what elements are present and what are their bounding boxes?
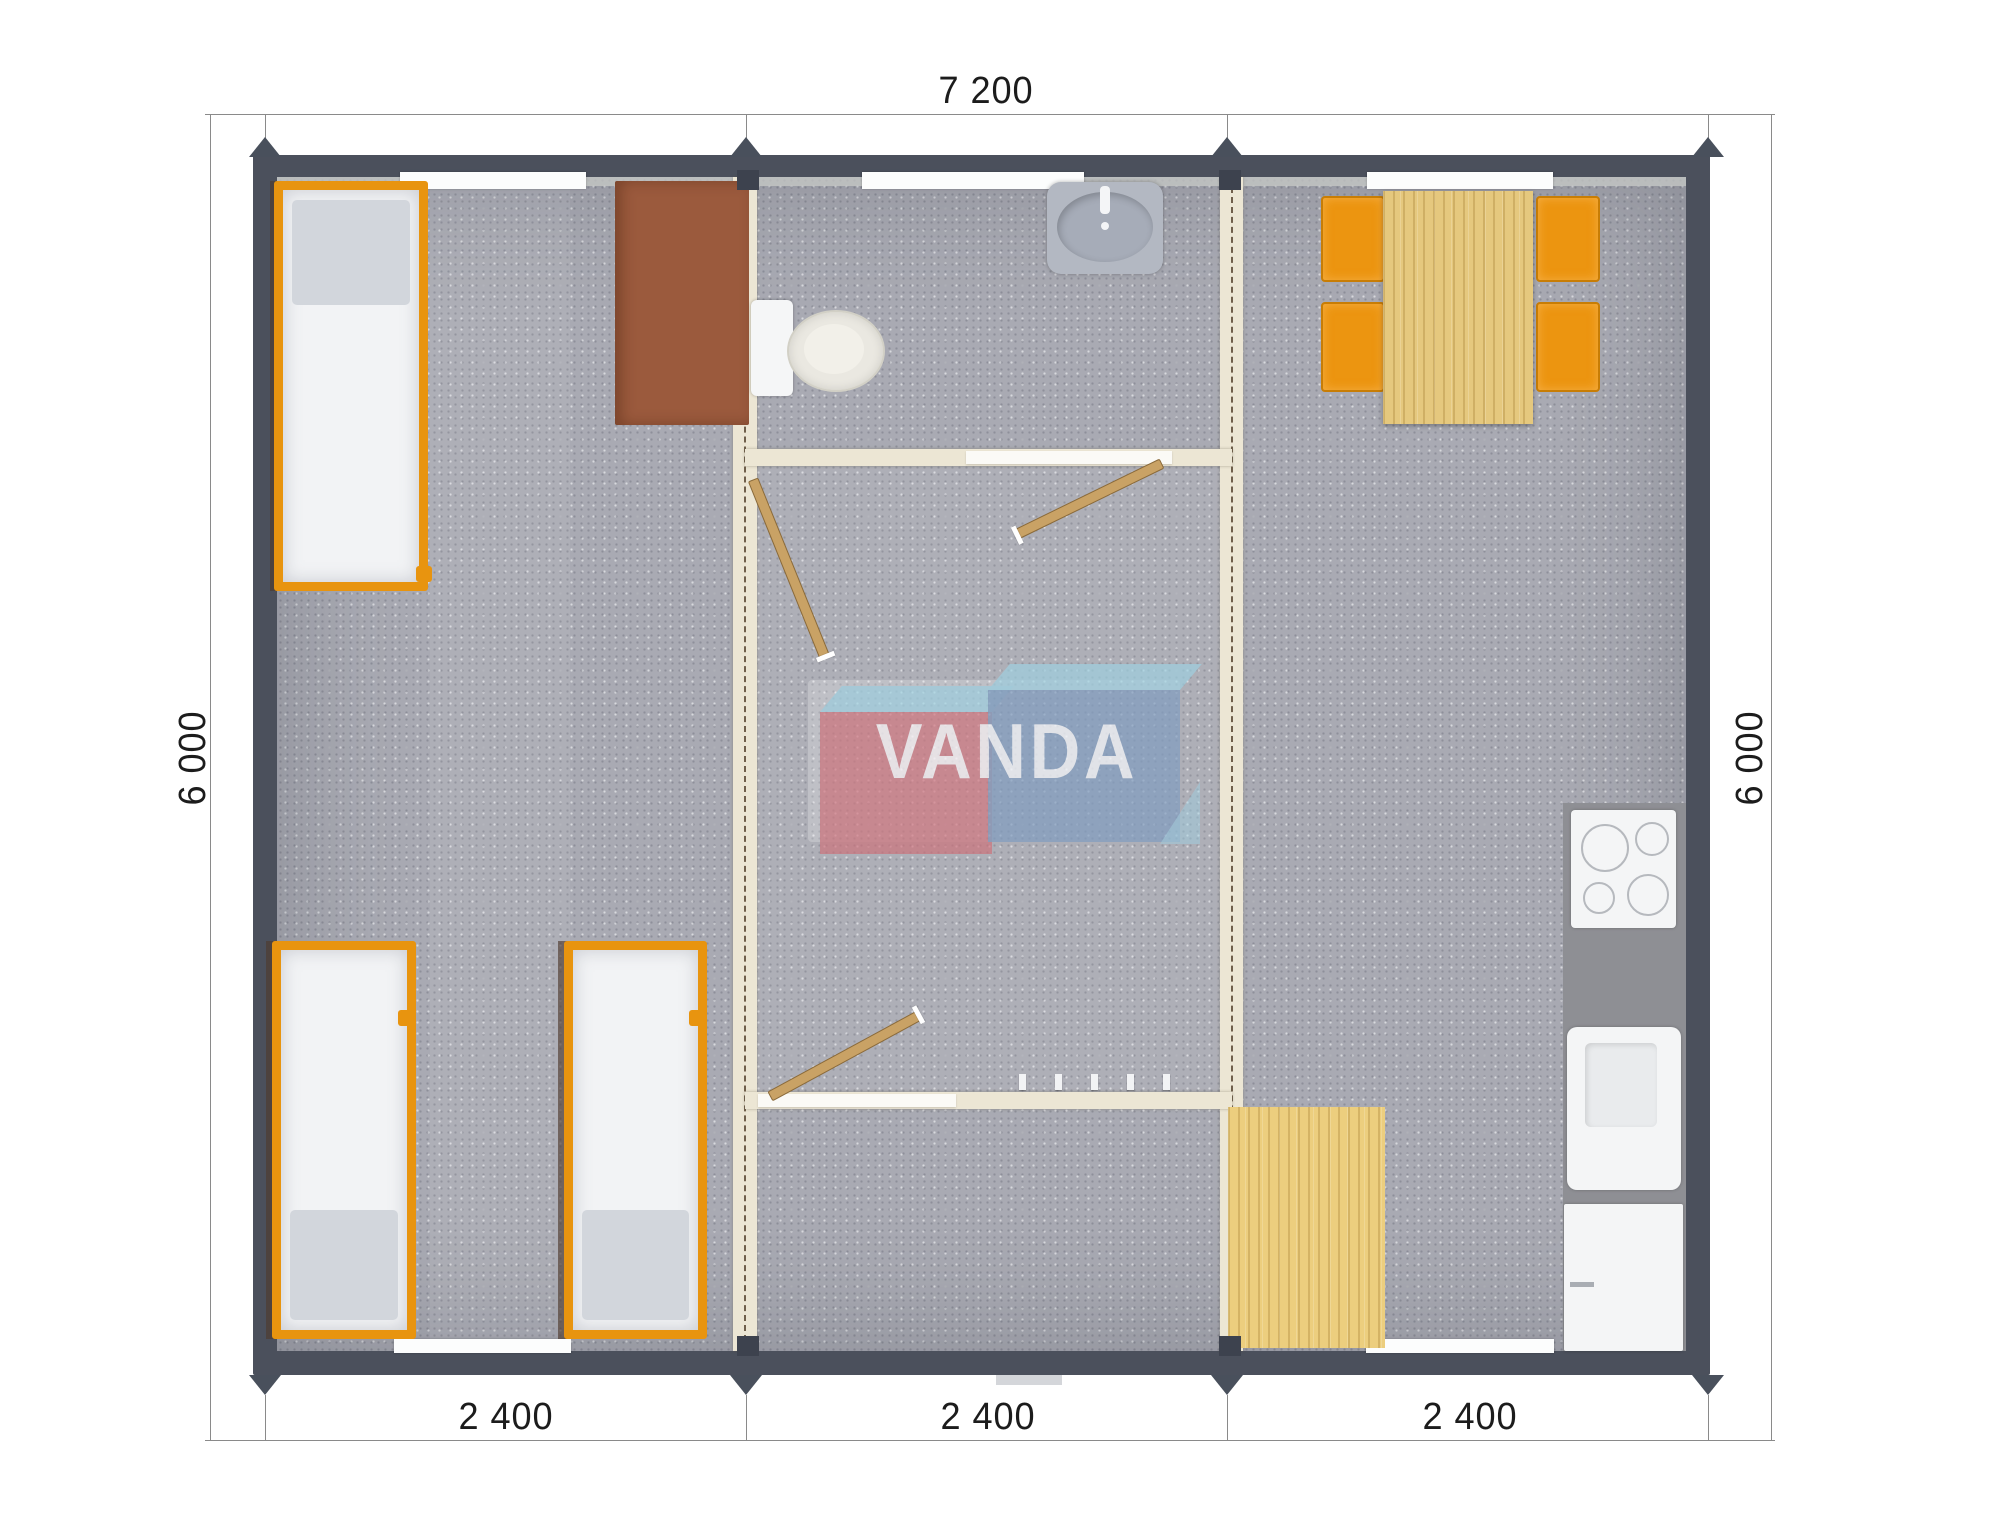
window-top-right-module — [1367, 172, 1553, 189]
extension-line — [746, 114, 747, 138]
window-bottom-left-module — [394, 1339, 571, 1353]
logo-text: VANDA — [841, 712, 1174, 790]
coat-hook — [1019, 1074, 1026, 1090]
coat-hook — [1163, 1074, 1170, 1090]
entrance-threshold — [996, 1375, 1062, 1385]
dimension-line-top — [205, 114, 1775, 115]
bathroom-door-opening — [966, 451, 1172, 464]
extension-line — [1227, 114, 1228, 138]
extension-line — [1227, 1395, 1228, 1440]
module-joint-marker — [737, 170, 759, 190]
extension-line — [265, 114, 266, 138]
toilet-seat — [804, 324, 864, 374]
dimension-label-bottom-3: 2 400 — [1328, 1398, 1613, 1436]
module-joint-marker — [737, 1336, 759, 1356]
dimension-arrow — [249, 1375, 281, 1395]
dimension-arrow — [1692, 1375, 1724, 1395]
desk-brown — [615, 181, 749, 425]
dining-table — [1383, 191, 1533, 424]
burner — [1627, 874, 1669, 916]
dimension-arrow — [730, 137, 762, 157]
drain-icon — [1101, 222, 1109, 230]
dimension-arrow — [249, 137, 281, 157]
window-bottom-right-module — [1366, 1339, 1554, 1353]
faucet-icon — [1100, 186, 1110, 214]
sink-basin — [1585, 1043, 1657, 1127]
toilet-bowl — [787, 310, 885, 392]
coat-hook — [1091, 1074, 1098, 1090]
pillow — [582, 1210, 689, 1320]
extension-line — [265, 1395, 266, 1440]
kitchen-floor-mat — [1228, 1107, 1385, 1348]
dining-chair — [1536, 196, 1600, 282]
burner — [1581, 824, 1629, 872]
vestibule-door-opening — [758, 1094, 956, 1107]
bed-post — [398, 1010, 414, 1026]
burner — [1583, 882, 1615, 914]
logo-blue-box-top-face — [988, 664, 1202, 690]
dimension-line-right — [1771, 114, 1772, 1441]
pillow — [290, 1210, 398, 1320]
fridge-handle — [1570, 1282, 1594, 1287]
washbasin — [1047, 182, 1163, 274]
bed-post — [416, 566, 432, 582]
dimension-label-bottom-1: 2 400 — [364, 1398, 649, 1436]
bed-bottom-left — [272, 941, 416, 1339]
dimension-arrow — [1211, 137, 1243, 157]
dimension-arrow — [1211, 1375, 1243, 1395]
floor-plan-canvas: VANDA — [0, 0, 2000, 1537]
dimension-line-bottom — [205, 1440, 1775, 1441]
extension-line — [1708, 114, 1709, 138]
dimension-label-right: 6 000 — [1731, 616, 1769, 901]
vanda-watermark: VANDA — [808, 662, 1200, 866]
extension-line — [746, 1395, 747, 1440]
coat-hook — [1055, 1074, 1062, 1090]
dimension-label-top: 7 200 — [844, 72, 1129, 110]
dimension-arrow — [1692, 137, 1724, 157]
extension-line — [1708, 1395, 1709, 1440]
dining-chair — [1536, 302, 1600, 392]
dimension-label-bottom-2: 2 400 — [846, 1398, 1131, 1436]
module-joint-marker — [1219, 170, 1241, 190]
bed-bottom-middle — [564, 941, 707, 1339]
dining-chair — [1321, 302, 1385, 392]
dimension-arrow — [730, 1375, 762, 1395]
bed-post — [689, 1010, 705, 1026]
bed-top-left — [274, 181, 428, 591]
dimension-label-left: 6 000 — [174, 616, 212, 901]
stove — [1571, 810, 1676, 928]
fridge — [1564, 1204, 1683, 1351]
kitchen-sink — [1567, 1027, 1681, 1190]
burner — [1635, 822, 1669, 856]
floor-light-band — [430, 177, 570, 1351]
coat-hook — [1127, 1074, 1134, 1090]
module-joint-marker — [1219, 1336, 1241, 1356]
dining-chair — [1321, 196, 1385, 282]
pillow — [292, 200, 410, 305]
